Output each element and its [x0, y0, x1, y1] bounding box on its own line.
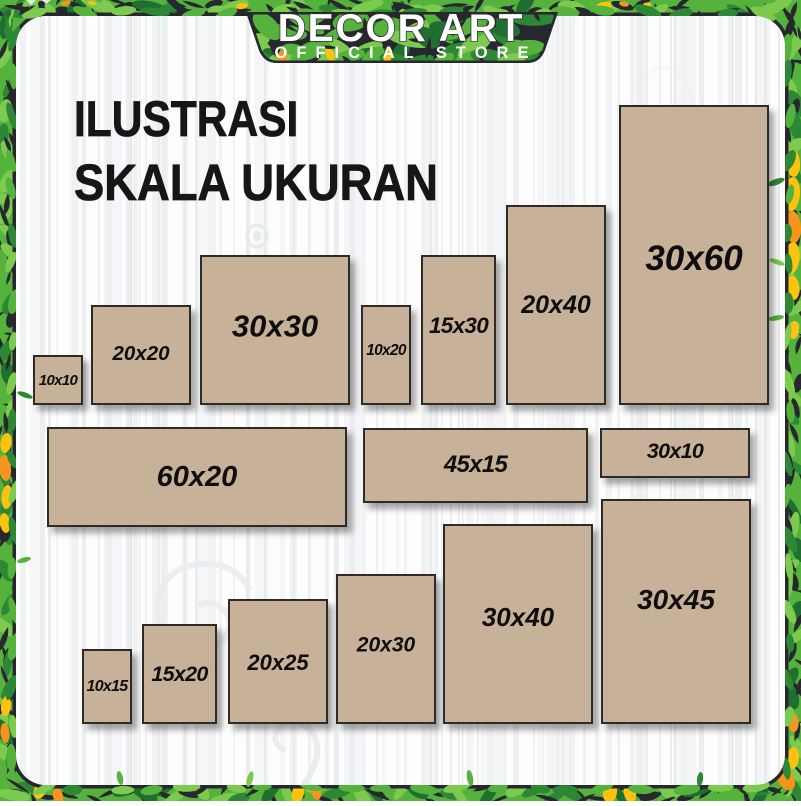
- svg-text:OFFICIAL STORE: OFFICIAL STORE: [275, 44, 538, 62]
